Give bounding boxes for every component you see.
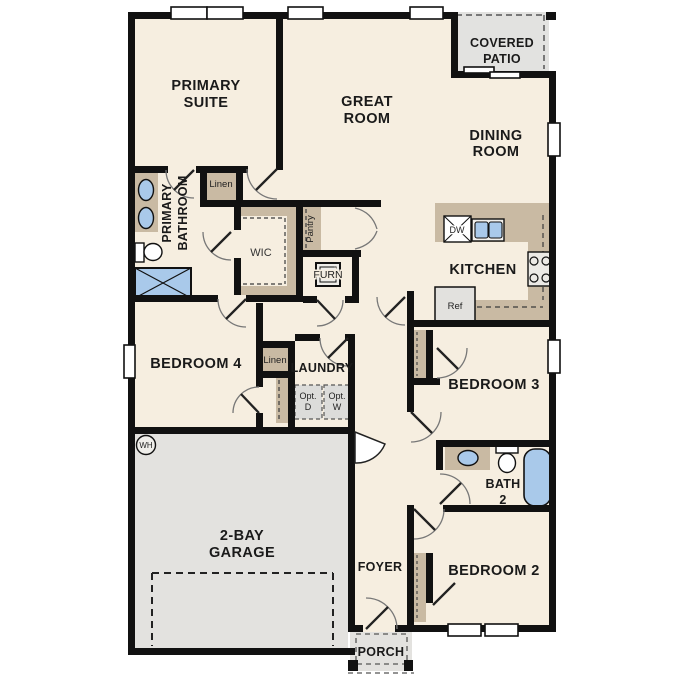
window <box>485 624 518 636</box>
label-furnace: FURN <box>313 269 342 281</box>
sink-icon <box>458 451 478 466</box>
label-covered-patio-line1: COVERED <box>470 36 534 50</box>
window <box>171 7 207 19</box>
label-linen-hall: Linen <box>263 355 286 366</box>
label-refrigerator: Ref <box>448 301 463 312</box>
label-primary-suite-line1: PRIMARY <box>171 78 240 94</box>
label-opt-washer-line2: W <box>333 402 342 412</box>
window <box>548 123 560 156</box>
label-bath2-line2: 2 <box>499 493 506 507</box>
toilet-icon <box>496 445 518 473</box>
window <box>548 340 560 373</box>
label-kitchen: KITCHEN <box>449 262 516 278</box>
label-water-heater: WH <box>139 441 153 450</box>
label-porch: PORCH <box>358 645 405 659</box>
label-dining-room-line2: ROOM <box>473 144 520 160</box>
label-dining-room-line1: DINING <box>469 128 522 144</box>
label-pantry: Pantry <box>305 215 316 243</box>
label-primary-bathroom-line2: BATHROOM <box>176 175 190 250</box>
label-dishwasher: DW <box>450 225 465 235</box>
kitchen-counter-bottom <box>473 300 549 320</box>
sliding-door <box>490 72 520 78</box>
label-laundry: LAUNDRY <box>291 361 354 375</box>
label-great-room-line2: ROOM <box>344 111 391 127</box>
window <box>124 345 135 378</box>
sink-icon <box>139 180 154 201</box>
label-covered-patio-line2: PATIO <box>483 52 521 66</box>
toilet-icon <box>135 243 162 262</box>
label-opt-dryer-line2: D <box>305 402 312 412</box>
label-bedroom4: BEDROOM 4 <box>150 356 241 372</box>
floor-plan-canvas: PRIMARY SUITE GREAT ROOM DINING ROOM COV… <box>0 0 687 687</box>
label-primary-bathroom-line1: PRIMARY <box>160 183 174 243</box>
label-primary-suite-line2: SUITE <box>184 95 229 111</box>
label-garage-line1: 2-BAY <box>220 528 264 544</box>
window <box>288 7 323 19</box>
label-opt-washer-line1: Opt. <box>328 391 345 401</box>
label-wic: WIC <box>250 247 271 259</box>
shower-icon <box>135 268 191 298</box>
label-bath2-line1: BATH <box>486 477 521 491</box>
label-garage-line2: GARAGE <box>209 545 275 561</box>
label-bedroom3: BEDROOM 3 <box>448 377 539 393</box>
bathtub-icon <box>524 449 551 506</box>
kitchen-sink-icon <box>472 219 504 241</box>
floor-plan: PRIMARY SUITE GREAT ROOM DINING ROOM COV… <box>0 0 687 687</box>
window <box>448 624 481 636</box>
label-bedroom2: BEDROOM 2 <box>448 563 539 579</box>
window <box>207 7 243 19</box>
label-opt-dryer-line1: Opt. <box>299 391 316 401</box>
bedroom2-closet <box>414 553 426 622</box>
label-foyer: FOYER <box>358 560 403 574</box>
label-great-room-line1: GREAT <box>341 94 393 110</box>
window <box>410 7 443 19</box>
bedroom3-closet <box>414 330 426 378</box>
sink-icon <box>139 208 154 229</box>
label-linen-primary: Linen <box>209 179 232 190</box>
stove-icon <box>528 252 551 286</box>
